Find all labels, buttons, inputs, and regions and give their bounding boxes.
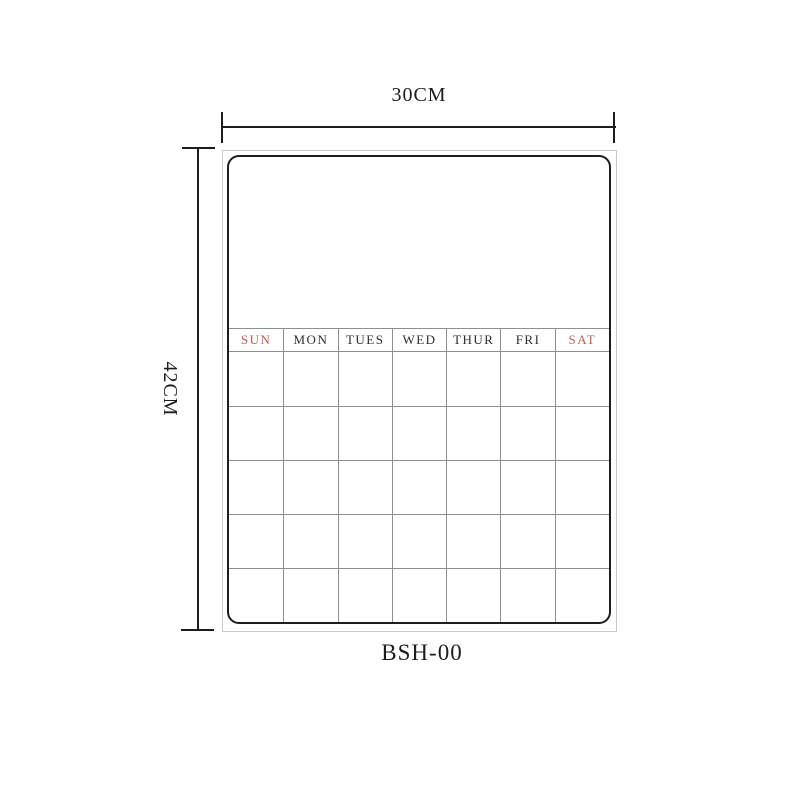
- calendar-cell: [500, 514, 554, 568]
- calendar-cell: [446, 352, 500, 406]
- calendar-cell: [338, 406, 392, 460]
- calendar-cell: [283, 514, 337, 568]
- day-header-tues: TUES: [338, 329, 392, 351]
- calendar-cell: [283, 460, 337, 514]
- day-header-mon: MON: [283, 329, 337, 351]
- height-dimension-bottom-tick: [181, 629, 214, 631]
- product-dimension-diagram: 30CM 42CM SUNMONTUESWEDTHURFRISAT BSH-00: [0, 0, 800, 800]
- day-header-sun: SUN: [229, 329, 283, 351]
- calendar-grid: [229, 352, 609, 622]
- calendar-cell: [500, 352, 554, 406]
- calendar-cell: [338, 352, 392, 406]
- model-number-label: BSH-00: [222, 640, 622, 666]
- calendar-cell: [229, 352, 283, 406]
- calendar-cell: [229, 514, 283, 568]
- height-dimension-top-tick: [182, 147, 215, 149]
- calendar-cell: [283, 568, 337, 622]
- calendar-cell: [229, 460, 283, 514]
- calendar-cell: [500, 460, 554, 514]
- day-header-sat: SAT: [555, 329, 609, 351]
- day-header-thur: THUR: [446, 329, 500, 351]
- calendar-cell: [392, 514, 446, 568]
- calendar-cell: [392, 568, 446, 622]
- height-dimension-line: [197, 148, 199, 630]
- day-header-fri: FRI: [500, 329, 554, 351]
- whiteboard-sheet: SUNMONTUESWEDTHURFRISAT: [222, 150, 617, 632]
- calendar-cell: [392, 352, 446, 406]
- calendar-cell: [229, 568, 283, 622]
- calendar-cell: [446, 406, 500, 460]
- calendar-cell: [283, 406, 337, 460]
- calendar-cell: [555, 514, 609, 568]
- calendar-cell: [555, 406, 609, 460]
- width-dimension-label: 30CM: [222, 84, 616, 107]
- day-header-wed: WED: [392, 329, 446, 351]
- calendar-cell: [283, 352, 337, 406]
- calendar-cell: [500, 406, 554, 460]
- width-dimension-left-tick: [221, 112, 223, 143]
- calendar-board: SUNMONTUESWEDTHURFRISAT: [227, 155, 611, 624]
- calendar-cell: [338, 514, 392, 568]
- width-dimension-line: [222, 126, 616, 128]
- blank-notes-area: [229, 157, 609, 328]
- calendar-cell: [338, 460, 392, 514]
- calendar-cell: [500, 568, 554, 622]
- calendar-cell: [446, 460, 500, 514]
- calendar-cell: [392, 406, 446, 460]
- calendar-cell: [555, 568, 609, 622]
- calendar-cell: [446, 514, 500, 568]
- day-header-row: SUNMONTUESWEDTHURFRISAT: [229, 328, 609, 352]
- calendar-cell: [229, 406, 283, 460]
- height-dimension-label: 42CM: [160, 360, 180, 418]
- width-dimension-right-tick: [613, 112, 615, 143]
- calendar-cell: [338, 568, 392, 622]
- calendar-cell: [555, 352, 609, 406]
- calendar-cell: [446, 568, 500, 622]
- calendar-cell: [392, 460, 446, 514]
- calendar-cell: [555, 460, 609, 514]
